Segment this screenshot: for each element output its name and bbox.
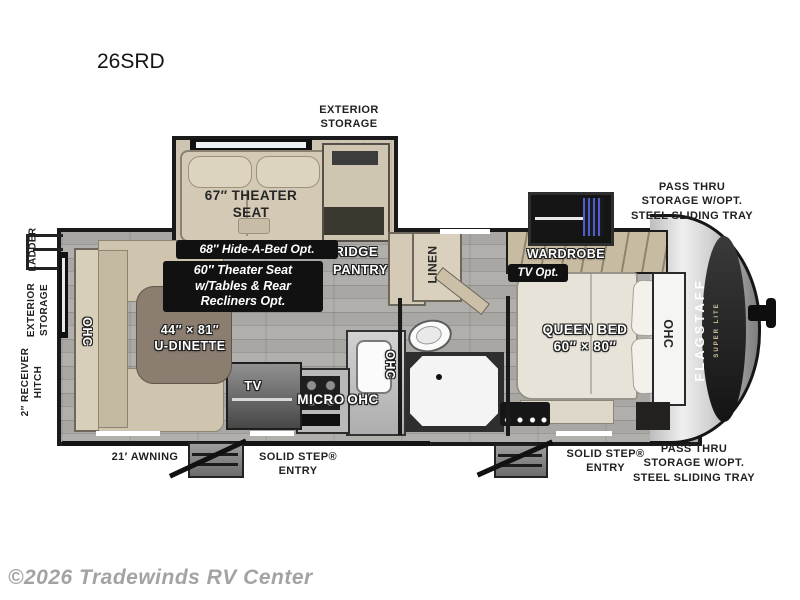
floorplan-page: 26SRD 67″ THEATER SEAT 68″ Hide-A-Bed Op… <box>0 0 800 600</box>
couch-cushion <box>188 156 252 188</box>
bedroom-corner-cabinet <box>636 402 670 430</box>
ohc-sink-label: OHC <box>381 345 397 385</box>
window-slit <box>250 431 294 436</box>
ohc-kitchen-label: OHC <box>341 392 385 409</box>
fridge-cabinet <box>322 143 390 242</box>
linen-label: LINEN <box>426 237 441 293</box>
sink-counter <box>346 330 406 436</box>
exterior-storage-side-label: EXTERIOR STORAGE <box>25 272 51 348</box>
couch-cushion <box>256 156 320 188</box>
ohc-dinette-label: OHC <box>78 312 94 352</box>
rear-window-glass <box>62 258 65 332</box>
pass-thru-top-label: PASS THRU STORAGE W/OPT. STEEL SLIDING T… <box>602 180 782 223</box>
window-slit <box>96 431 160 436</box>
shower <box>404 352 504 432</box>
brand-sub-logo: SUPER LITE <box>714 290 722 370</box>
pantry-label: PANTRY <box>313 262 408 278</box>
shower-pan <box>410 356 498 426</box>
front-cap-accent <box>702 236 746 422</box>
bathroom-wall <box>398 298 402 435</box>
queen-bed-label: QUEEN BED 60″ × 80″ <box>500 322 670 356</box>
toilet-bowl <box>414 324 443 347</box>
tv-label: TV <box>233 378 273 394</box>
hitch-jack <box>766 298 776 328</box>
dealer-watermark: ©2026 Tradewinds RV Center <box>8 566 313 590</box>
page-title: 26SRD <box>97 50 165 74</box>
oven-door <box>302 414 340 426</box>
bedroom-wall <box>506 296 510 436</box>
rear-window <box>59 252 68 338</box>
theater-seat-label: 67″ THEATER SEAT <box>181 188 321 222</box>
receiver-hitch-label: 2″ RECEIVER HITCH <box>19 342 45 422</box>
brand-logo: FLAGSTAFF <box>692 270 708 390</box>
ladder-label: LADDER <box>27 220 40 280</box>
theater-seat-option-tag: 60″ Theater Seat w/Tables & Rear Recline… <box>163 261 323 312</box>
window-slit <box>556 431 612 436</box>
shower-drain <box>436 374 442 380</box>
window-slit <box>440 229 490 234</box>
wardrobe-label: WARDROBE <box>496 247 636 263</box>
steel-sliding-tray <box>583 198 603 236</box>
entry-main-label: SOLID STEP® ENTRY <box>248 450 348 479</box>
exterior-storage-top-label: EXTERIOR STORAGE <box>289 103 409 132</box>
awning-label: 21′ AWNING <box>85 450 205 464</box>
u-dinette-label: 44″ × 81″ U-DINETTE <box>110 323 270 354</box>
slideout-window-glass <box>196 142 306 148</box>
fridge-lower-panel <box>324 207 384 235</box>
tray-rail <box>535 217 585 220</box>
entry-bedroom-label: SOLID STEP® ENTRY <box>558 447 653 476</box>
exterior-storage-compartment <box>332 151 378 165</box>
hide-a-bed-option-tag: 68″ Hide-A-Bed Opt. <box>176 240 338 259</box>
tv-shelf-line <box>232 398 292 401</box>
ohc-bedroom-label: OHC <box>659 314 675 354</box>
tv-option-tag: TV Opt. <box>508 264 568 282</box>
